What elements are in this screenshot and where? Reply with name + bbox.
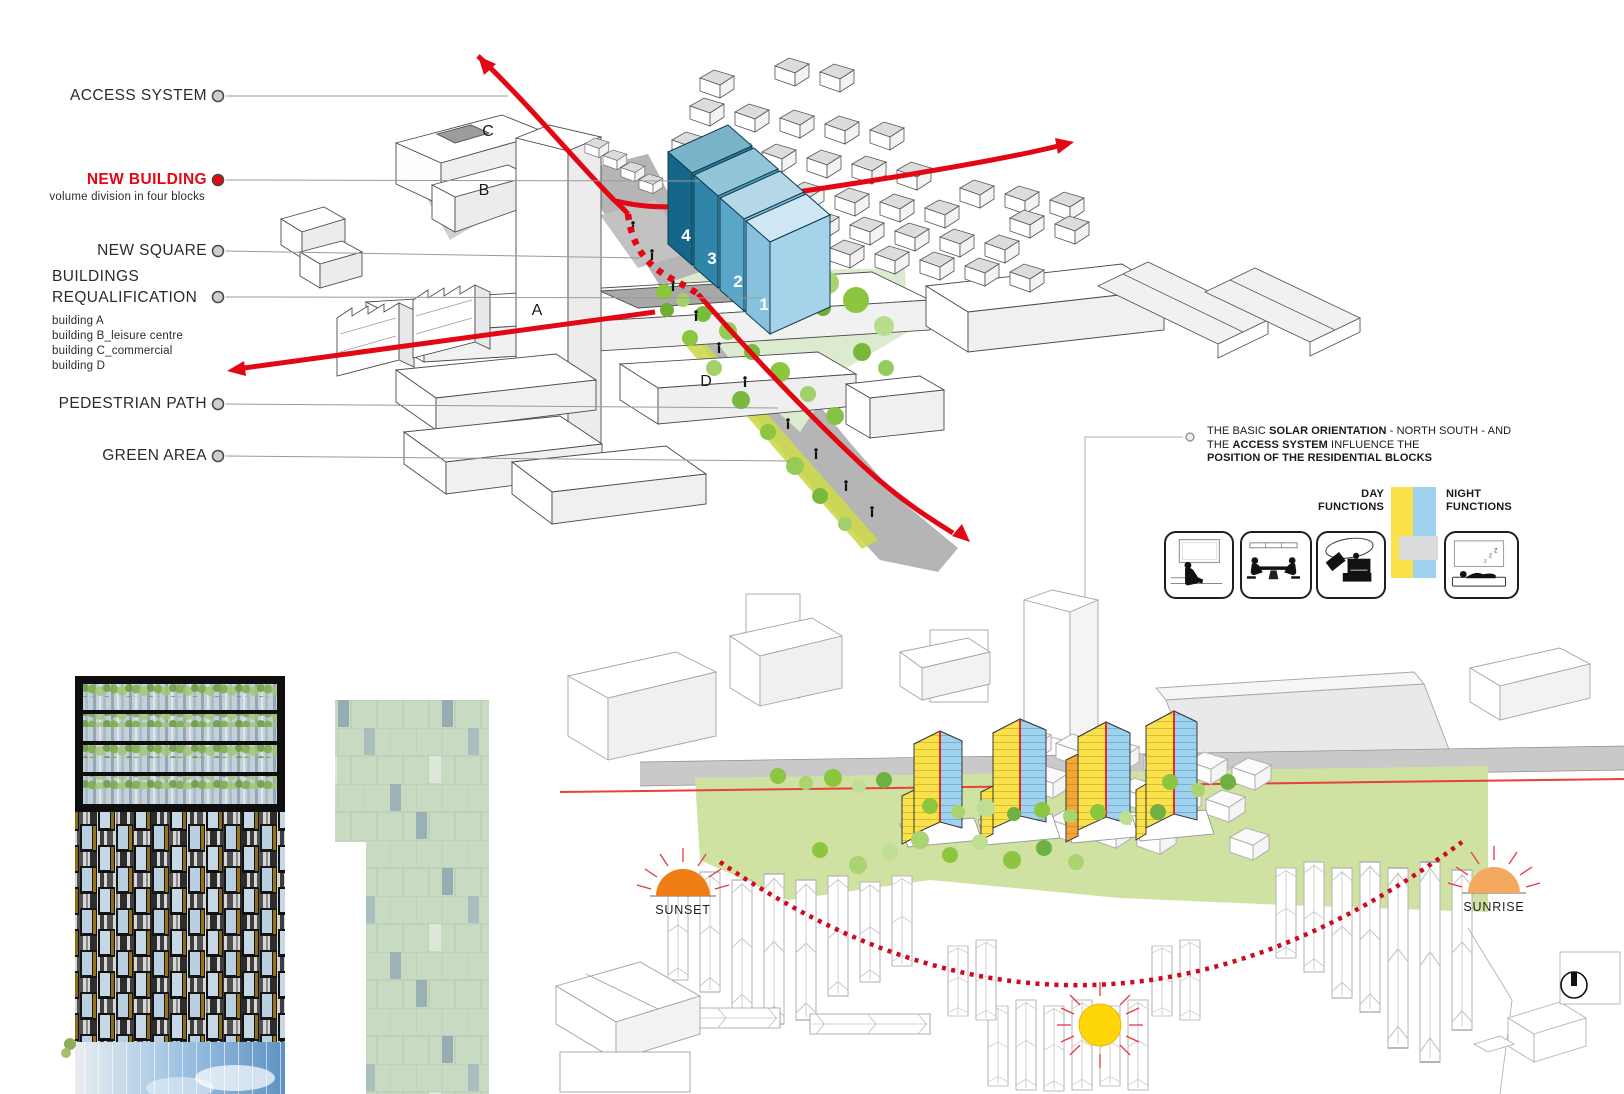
letter-b: B: [479, 182, 490, 199]
dining-icon: [1242, 533, 1305, 592]
kitchen-icon: [1318, 533, 1379, 592]
access-system-dot: [213, 91, 224, 102]
night-functions-label: NIGHTFUNCTIONS: [1446, 488, 1556, 514]
day-functions-label: DAYFUNCTIONS: [1284, 488, 1384, 514]
day-icon-living: [1164, 531, 1234, 599]
buildings-requalification-dot: [213, 292, 224, 303]
sleeping-icon: z z z: [1446, 533, 1512, 592]
note-line-2: THE ACCESS SYSTEM INFLUENCE THE: [1207, 439, 1547, 453]
green-area-dot: [213, 451, 224, 462]
legend-label-new-building: NEW BUILDING: [0, 171, 207, 189]
architecture-concept-board: 4 3 2 1 C B A D: [0, 0, 1624, 1094]
pedestrian-path-dot: [213, 399, 224, 410]
material-swatch: [335, 700, 489, 1094]
legend-label-green-area: GREEN AREA: [0, 447, 207, 465]
terraced-rows: [660, 862, 1472, 1091]
legend-label-requalification: REQUALIFICATION: [52, 289, 197, 307]
legend-sub-building-b: building B_leisure centre: [52, 329, 183, 344]
top-axonometric-diagram: 4 3 2 1 C B A D: [213, 56, 1361, 572]
living-room-icon: [1166, 533, 1227, 592]
day-icon-dining: [1240, 531, 1312, 599]
block-number-3: 3: [707, 249, 716, 268]
letter-c: C: [482, 123, 494, 140]
legend-sub-new-building: volume division in four blocks: [0, 190, 205, 205]
zzz-2: z: [1489, 553, 1493, 560]
new-square-dot: [213, 246, 224, 257]
zzz-3: z: [1494, 546, 1498, 555]
bottom-left-warehouses: [556, 962, 700, 1092]
night-icon-sleeping: z z z: [1444, 531, 1519, 599]
legend-sub-building-c: building C_commercial: [52, 344, 173, 359]
legend-dots: [213, 91, 224, 462]
bottom-right-context: [1468, 928, 1620, 1094]
block-number-2: 2: [733, 272, 742, 291]
sawtooth-building-1: [337, 303, 414, 376]
sunset-label: SUNSET: [633, 903, 733, 917]
note-line-1: THE BASIC SOLAR ORIENTATION - NORTH SOUT…: [1207, 425, 1547, 439]
letter-a: A: [532, 302, 543, 319]
note-line-3: POSITION OF THE RESIDENTIAL BLOCKS: [1207, 452, 1547, 466]
letter-d: D: [700, 373, 712, 390]
legend-sub-building-a: building A: [52, 314, 104, 329]
small-buildings-left: [281, 207, 362, 288]
zzz-1: z: [1484, 559, 1487, 565]
night-color-bar: [1413, 487, 1436, 578]
facade-render: [61, 676, 285, 1094]
block-number-4: 4: [681, 226, 691, 245]
day-color-bar: [1391, 487, 1413, 578]
north-indicator-icon: [1561, 972, 1587, 998]
solar-note-dot: [1186, 433, 1194, 441]
new-building-dot: [213, 175, 224, 186]
legend-label-access-system: ACCESS SYSTEM: [0, 87, 207, 105]
core-overlay-bar: [1399, 536, 1438, 560]
day-icon-kitchen: [1316, 531, 1386, 599]
legend-label-new-square: NEW SQUARE: [0, 242, 207, 260]
solar-orientation-note: THE BASIC SOLAR ORIENTATION - NORTH SOUT…: [1207, 425, 1547, 466]
legend-label-buildings: BUILDINGS: [52, 268, 139, 286]
legend-label-pedestrian-path: PEDESTRIAN PATH: [0, 395, 207, 413]
sunrise-label: SUNRISE: [1444, 900, 1544, 914]
legend-sub-building-d: building D: [52, 359, 105, 374]
